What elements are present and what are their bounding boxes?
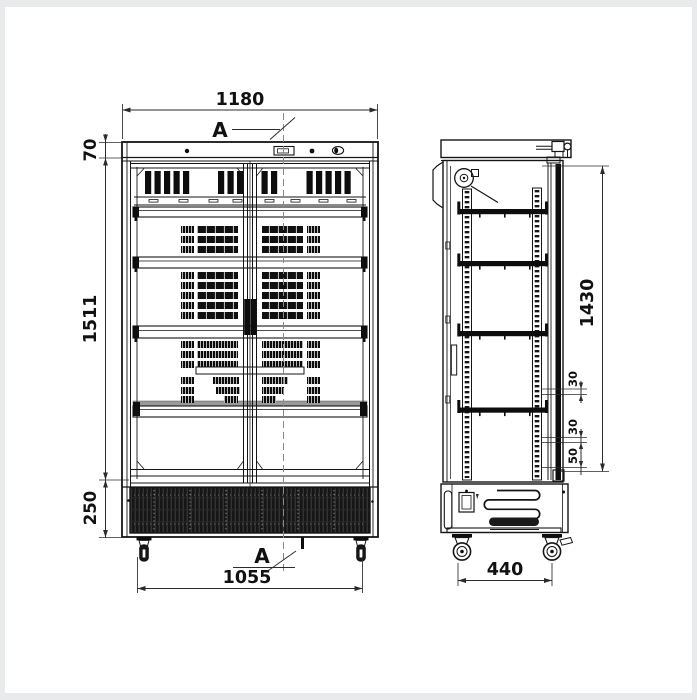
dim-wheelbase-depth: 440 xyxy=(487,560,524,580)
dim-body-height: 1511 xyxy=(81,295,101,344)
canopy-panel xyxy=(185,147,344,156)
side-shelves xyxy=(457,202,548,417)
dim-wheelbase-width: 1055 xyxy=(223,568,272,588)
shelf-products xyxy=(181,226,320,403)
right-door-handle xyxy=(251,299,257,335)
caster-brake xyxy=(560,538,573,546)
dim-canopy-height: 70 xyxy=(81,139,100,162)
dim-base-height: 250 xyxy=(81,491,100,525)
base-bolt-left xyxy=(127,499,130,502)
side-casters xyxy=(452,534,562,560)
dim-shelf-gap-lower: 30 xyxy=(566,419,580,435)
condenser-coil xyxy=(484,491,539,519)
side-door xyxy=(547,157,564,481)
dim-shelf-gap-upper: 30 xyxy=(566,371,580,387)
back-panel-bump xyxy=(433,162,443,208)
evaporator-fan xyxy=(455,169,498,203)
left-door-handle xyxy=(244,299,250,335)
top-hinge xyxy=(536,142,571,158)
ventilation-grille xyxy=(130,488,370,534)
dim-overall-width: 1180 xyxy=(216,90,265,110)
section-label-top: A xyxy=(212,118,228,142)
dim-rail-bottom-gap: 50 xyxy=(566,448,580,464)
refrigerator-technical-drawing: 1180 A 70 1511 250 1055 xyxy=(0,0,697,700)
canopy-screw xyxy=(185,149,189,153)
side-view xyxy=(433,140,573,560)
front-casters xyxy=(137,537,369,561)
drawing-page: 1180 A 70 1511 250 1055 xyxy=(0,0,697,700)
filter-drier xyxy=(444,491,452,529)
front-view xyxy=(122,113,378,571)
section-label-bottom: A xyxy=(254,544,270,568)
machine-compartment xyxy=(441,484,568,533)
probe-slot xyxy=(451,345,456,375)
indicator-light xyxy=(310,149,315,154)
dim-door-height: 1430 xyxy=(578,279,598,328)
